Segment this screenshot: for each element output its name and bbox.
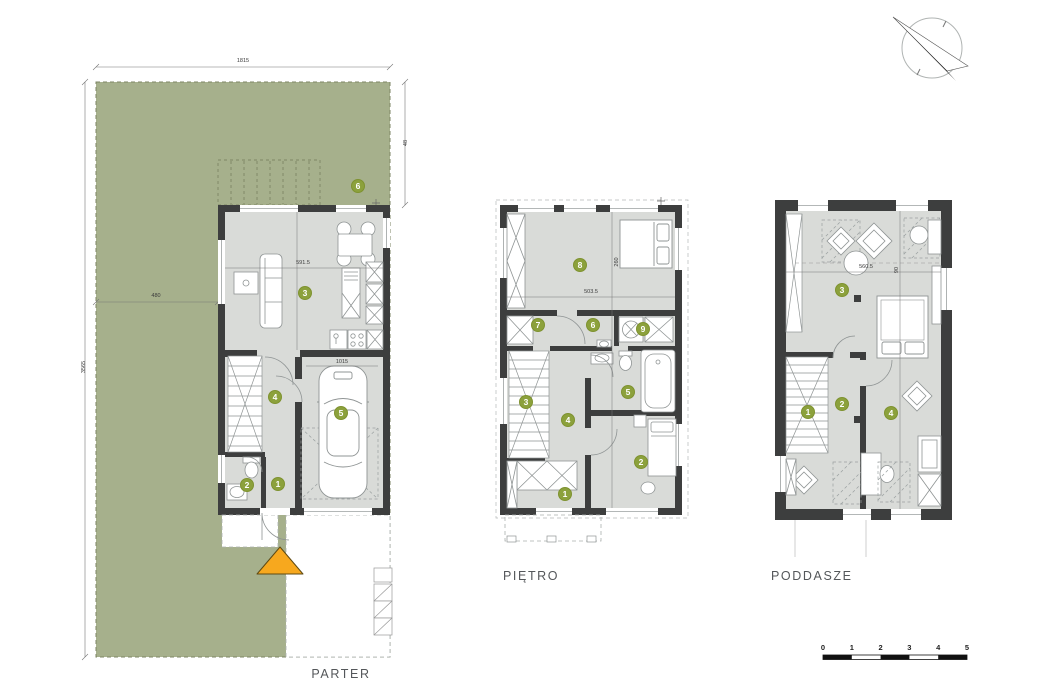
north-arrow-compass xyxy=(893,17,968,81)
room-marker-pietro-7: 7 xyxy=(531,318,545,332)
room-marker-parter-5: 5 xyxy=(334,406,348,420)
dimension-label: 560.5 xyxy=(859,264,873,270)
bed-3 xyxy=(877,296,928,358)
room-marker-poddasze-1: 1 xyxy=(801,405,815,419)
room-marker-poddasze-2: 2 xyxy=(835,397,849,411)
room-marker-pietro-4: 4 xyxy=(561,413,575,427)
room-marker-pietro-9: 9 xyxy=(636,322,650,336)
dimension-label: 503.5 xyxy=(584,289,598,295)
room-marker-parter-6: 6 xyxy=(351,179,365,193)
scale-number: 1 xyxy=(850,643,854,652)
room-marker-pietro-8: 8 xyxy=(573,258,587,272)
car xyxy=(317,366,369,498)
scale-number: 5 xyxy=(965,643,969,652)
room-marker-pietro-3: 3 xyxy=(519,395,533,409)
scale-number: 0 xyxy=(821,643,825,652)
room-marker-pietro-2: 2 xyxy=(634,455,648,469)
shelf xyxy=(932,266,941,324)
dimension-label: 591.5 xyxy=(296,260,310,266)
floorplan-sheet: 1815484803565591.51015634521503.52608769… xyxy=(0,0,1040,699)
stairs xyxy=(228,356,262,452)
entrance-porch xyxy=(222,515,278,547)
scale-number: 3 xyxy=(907,643,911,652)
knee-wall-hatch xyxy=(786,214,802,332)
room-marker-pietro-5: 5 xyxy=(621,385,635,399)
dimension-label: 260 xyxy=(614,257,620,266)
floor-label-pietro: PIĘTRO xyxy=(503,569,559,583)
floor-plan-parter xyxy=(218,205,390,547)
wardrobe xyxy=(507,214,525,308)
room-marker-pietro-1: 1 xyxy=(558,487,572,501)
eave-lines xyxy=(795,520,866,557)
room-marker-parter-3: 3 xyxy=(298,286,312,300)
scale-number: 4 xyxy=(936,643,940,652)
room-marker-parter-4: 4 xyxy=(268,390,282,404)
dimension-label: 1015 xyxy=(336,359,348,365)
room-marker-poddasze-4: 4 xyxy=(884,406,898,420)
floor-label-poddasze: PODDASZE xyxy=(771,569,853,583)
room-marker-pietro-6: 6 xyxy=(586,318,600,332)
dimension-label: 480 xyxy=(151,293,160,299)
round-chair xyxy=(910,226,928,244)
floor-plan-pietro xyxy=(496,197,688,542)
dimension-label: 3565 xyxy=(81,361,87,373)
floor-label-parter: PARTER xyxy=(311,667,370,681)
dimension-label: 48 xyxy=(403,140,409,146)
round-table xyxy=(844,251,868,275)
bed xyxy=(620,220,672,268)
balcony xyxy=(505,515,601,542)
plan-drawing xyxy=(0,0,1040,699)
dimension-label: 90 xyxy=(894,267,900,273)
dimension-label: 1815 xyxy=(237,58,249,64)
room-marker-parter-1: 1 xyxy=(271,477,285,491)
room-marker-poddasze-3: 3 xyxy=(835,283,849,297)
scale-bar xyxy=(823,655,967,660)
scale-number: 2 xyxy=(879,643,883,652)
floor-plan-poddasze xyxy=(775,200,952,557)
storage-boxes xyxy=(374,568,392,635)
room-marker-parter-2: 2 xyxy=(240,478,254,492)
survey-cross xyxy=(657,197,665,205)
desk-chair xyxy=(880,466,894,483)
